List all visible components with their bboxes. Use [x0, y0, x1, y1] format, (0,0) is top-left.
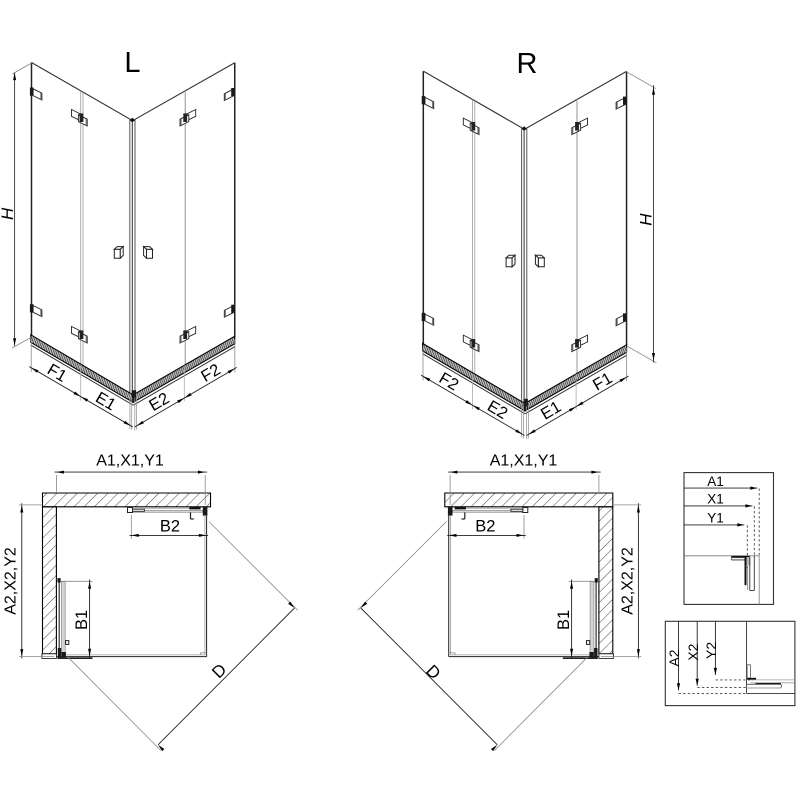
- svg-text:B2: B2: [475, 518, 495, 536]
- svg-text:H: H: [637, 213, 656, 226]
- svg-text:X2: X2: [685, 643, 701, 660]
- svg-text:A2,X2,Y2: A2,X2,Y2: [3, 547, 20, 615]
- svg-text:Y2: Y2: [703, 642, 719, 659]
- svg-text:A1,X1,Y1: A1,X1,Y1: [96, 453, 164, 470]
- svg-text:Y1: Y1: [707, 511, 724, 526]
- svg-text:R: R: [517, 48, 538, 80]
- svg-text:A1,X1,Y1: A1,X1,Y1: [490, 453, 558, 470]
- svg-text:H: H: [0, 207, 17, 220]
- svg-text:L: L: [124, 47, 140, 79]
- svg-text:A1: A1: [707, 474, 724, 489]
- svg-text:X1: X1: [707, 492, 724, 507]
- svg-text:A2: A2: [666, 649, 682, 666]
- svg-text:B1: B1: [555, 610, 573, 630]
- svg-text:B2: B2: [160, 518, 180, 536]
- svg-text:A2,X2,Y2: A2,X2,Y2: [620, 547, 637, 615]
- svg-text:B1: B1: [73, 610, 91, 630]
